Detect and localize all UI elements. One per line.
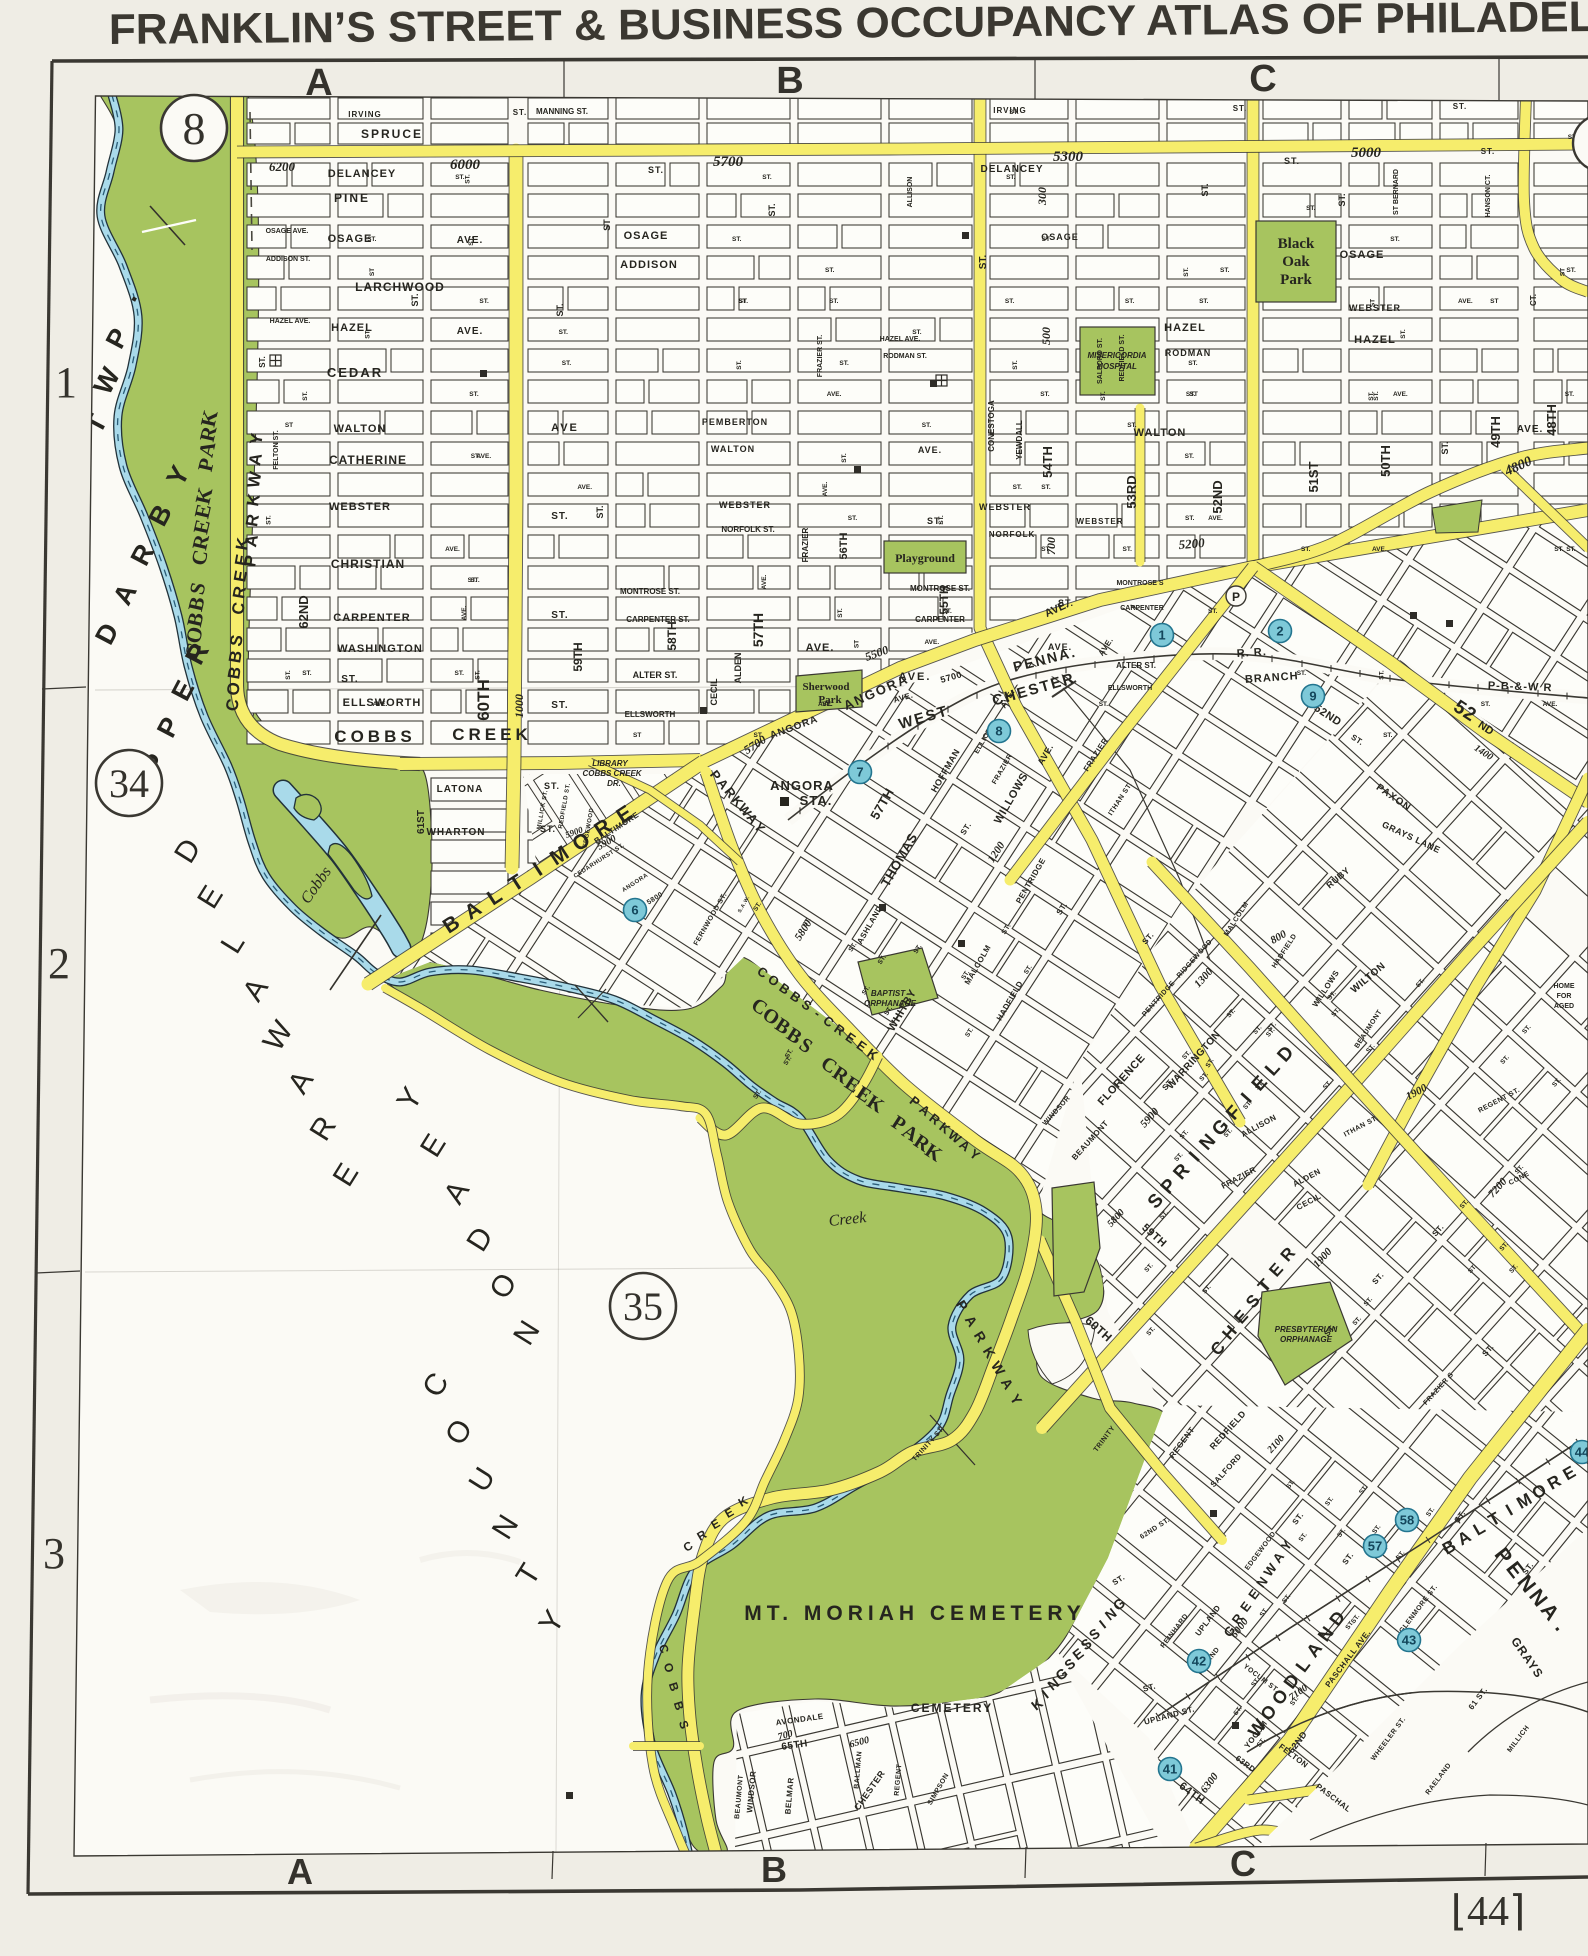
svg-text:ST.: ST. — [1005, 298, 1015, 305]
svg-text:ST.: ST. — [822, 701, 832, 708]
svg-text:ALTER ST.: ALTER ST. — [1116, 661, 1156, 670]
svg-text:ST.: ST. — [1554, 546, 1564, 553]
svg-text:CHRISTIAN: CHRISTIAN — [331, 557, 405, 571]
svg-text:SPRUCE: SPRUCE — [361, 127, 423, 141]
svg-text:ST.: ST. — [1383, 732, 1393, 739]
svg-text:AVE.: AVE. — [457, 326, 484, 337]
svg-text:ST.: ST. — [1390, 236, 1400, 243]
svg-text:ELLSWORTH: ELLSWORTH — [1108, 685, 1152, 692]
svg-text:ST.: ST. — [648, 165, 664, 175]
svg-text:ST.: ST. — [753, 732, 763, 739]
svg-text:ST.: ST. — [341, 674, 358, 685]
svg-text:ELLSWORTH: ELLSWORTH — [625, 710, 676, 719]
svg-text:ST.: ST. — [839, 360, 849, 367]
svg-text:FRAZIER ST.: FRAZIER ST. — [817, 335, 824, 377]
svg-text:ST.: ST. — [841, 453, 848, 463]
svg-text:AVE.: AVE. — [1517, 424, 1544, 435]
svg-text:ST.: ST. — [1233, 104, 1248, 113]
svg-text:ST.: ST. — [1099, 701, 1109, 708]
svg-text:ST.: ST. — [736, 360, 743, 370]
svg-text:ST.: ST. — [1100, 391, 1107, 401]
svg-text:OSAGE: OSAGE — [328, 233, 373, 245]
svg-text:MONTROSE S: MONTROSE S — [1116, 580, 1163, 587]
svg-text:ORPHANAGE: ORPHANAGE — [1280, 1335, 1333, 1344]
svg-text:ST: ST — [369, 268, 376, 276]
svg-text:51ST: 51ST — [1306, 461, 1321, 492]
svg-text:IRVING: IRVING — [348, 110, 381, 119]
svg-text:C: C — [1249, 58, 1276, 100]
svg-text:ST.: ST. — [475, 670, 482, 680]
svg-text:ST.: ST. — [562, 360, 572, 367]
svg-text:ST.: ST. — [1297, 670, 1307, 677]
svg-text:43: 43 — [1402, 1633, 1416, 1648]
svg-text:HOME: HOME — [1554, 983, 1575, 990]
svg-text:AVE.: AVE. — [761, 574, 768, 589]
svg-text:ST.: ST. — [912, 329, 922, 336]
svg-text:ST: ST — [738, 298, 746, 305]
svg-text:ST.: ST. — [922, 422, 932, 429]
svg-text:AVE.: AVE. — [373, 701, 388, 708]
svg-text:NORFOLK ST.: NORFOLK ST. — [721, 525, 774, 534]
svg-text:ST.: ST. — [1337, 193, 1347, 206]
svg-text:ST.: ST. — [1453, 102, 1468, 111]
svg-text:AVE.: AVE. — [1393, 391, 1408, 398]
svg-text:9: 9 — [1309, 689, 1316, 704]
svg-text:OSAGE AVE.: OSAGE AVE. — [266, 228, 309, 235]
svg-text:WEBSTER: WEBSTER — [329, 501, 391, 513]
svg-text:ST.: ST. — [302, 391, 309, 401]
svg-text:C: C — [1230, 1843, 1256, 1884]
svg-text:ST.: ST. — [1040, 391, 1050, 398]
svg-text:ST.: ST. — [513, 108, 528, 117]
svg-text:ST.: ST. — [1379, 670, 1386, 680]
svg-text:7: 7 — [856, 765, 863, 780]
svg-text:ST.: ST. — [1368, 391, 1375, 401]
svg-text:44: 44 — [1575, 1445, 1588, 1460]
svg-text:ALLISON: ALLISON — [907, 177, 914, 208]
svg-text:53RD: 53RD — [1124, 475, 1139, 508]
svg-text:ANGORA: ANGORA — [770, 778, 834, 793]
svg-text:ST.: ST. — [1566, 546, 1576, 553]
svg-text:500: 500 — [1039, 327, 1053, 345]
svg-text:60TH: 60TH — [474, 679, 493, 721]
svg-text:WALTON: WALTON — [334, 423, 387, 435]
svg-text:NORFOLK: NORFOLK — [989, 530, 1036, 539]
svg-text:B: B — [761, 1849, 787, 1890]
svg-text:HANSON CT.: HANSON CT. — [1485, 175, 1492, 218]
svg-text:CONESTOGA: CONESTOGA — [987, 400, 996, 452]
svg-text:57: 57 — [1368, 1539, 1382, 1554]
svg-text:AVE.: AVE. — [445, 546, 460, 553]
svg-text:WALTON: WALTON — [711, 444, 755, 454]
svg-text:ST.: ST. — [302, 670, 312, 677]
svg-text:ST.: ST. — [1125, 298, 1135, 305]
svg-text:P-B-&-W R: P-B-&-W R — [1488, 680, 1553, 694]
svg-text:58TH: 58TH — [665, 621, 679, 650]
svg-text:CREEK: CREEK — [452, 725, 532, 744]
svg-text:COBBS CREEK: COBBS CREEK — [582, 769, 642, 778]
svg-text:49TH: 49TH — [1488, 416, 1503, 448]
svg-text:ST.: ST. — [1566, 267, 1576, 274]
svg-text:ALTER ST.: ALTER ST. — [633, 670, 678, 680]
svg-text:ADDISON ST.: ADDISON ST. — [266, 256, 310, 263]
svg-text:1000: 1000 — [512, 694, 526, 718]
svg-text:54TH: 54TH — [1040, 446, 1055, 478]
svg-text:WEBSTER: WEBSTER — [719, 500, 771, 510]
svg-text:AGED: AGED — [1554, 1003, 1574, 1010]
svg-text:Sherwood: Sherwood — [802, 681, 849, 693]
svg-text:DELANCEY: DELANCEY — [328, 168, 397, 180]
svg-text:61ST: 61ST — [416, 810, 427, 834]
svg-text:LATONA: LATONA — [437, 784, 484, 795]
svg-text:AVE.: AVE. — [822, 481, 829, 496]
svg-text:ST.: ST. — [1012, 360, 1019, 370]
svg-text:ST: ST — [1190, 391, 1198, 398]
svg-text:ST.: ST. — [365, 329, 372, 339]
svg-text:MONTROSE ST.: MONTROSE ST. — [620, 587, 680, 596]
svg-text:ST.: ST. — [1220, 267, 1230, 274]
svg-text:Oak: Oak — [1282, 254, 1310, 270]
svg-text:ST.: ST. — [468, 236, 475, 246]
svg-text:ST.: ST. — [1481, 701, 1491, 708]
svg-text:CECIL: CECIL — [709, 678, 719, 706]
svg-text:ST.: ST. — [595, 505, 605, 518]
svg-text:ST.: ST. — [1041, 546, 1051, 553]
svg-text:DR.: DR. — [607, 779, 621, 788]
svg-text:ST: ST — [285, 422, 293, 429]
svg-text:AVE.: AVE. — [461, 605, 468, 620]
svg-text:ST.: ST. — [465, 174, 472, 184]
svg-text:ST.: ST. — [285, 670, 292, 680]
svg-text:P: P — [1232, 590, 1240, 604]
svg-text:3: 3 — [43, 1529, 65, 1578]
svg-text:SALFORD ST.: SALFORD ST. — [1097, 338, 1104, 384]
svg-text:ALDEN: ALDEN — [733, 653, 743, 684]
svg-text:CATHERINE: CATHERINE — [329, 453, 407, 467]
svg-text:BAPTIST: BAPTIST — [871, 989, 906, 998]
svg-text:ST.: ST. — [1301, 546, 1311, 553]
svg-text:57TH: 57TH — [750, 613, 766, 647]
svg-text:ST.: ST. — [942, 608, 952, 615]
svg-text:ST.: ST. — [762, 174, 772, 181]
svg-text:FRAZIER: FRAZIER — [801, 527, 810, 562]
svg-text:ST.: ST. — [732, 236, 742, 243]
svg-text:300: 300 — [1035, 187, 1049, 206]
svg-text:52ND: 52ND — [1210, 480, 1225, 513]
svg-text:ST.: ST. — [837, 608, 844, 618]
svg-text:PEMBERTON: PEMBERTON — [702, 417, 768, 427]
svg-text:ST.: ST. — [1565, 391, 1575, 398]
svg-text:AVE.: AVE. — [1543, 701, 1558, 708]
svg-text:CT.: CT. — [1529, 294, 1538, 306]
svg-text:AVE.: AVE. — [1208, 515, 1223, 522]
svg-text:50TH: 50TH — [1378, 445, 1393, 477]
svg-text:1: 1 — [1158, 628, 1165, 643]
svg-text:MISERICORDIA: MISERICORDIA — [1087, 351, 1146, 360]
svg-text:41: 41 — [1163, 1762, 1177, 1777]
svg-text:ST.: ST. — [938, 515, 945, 525]
svg-text:ST.: ST. — [470, 577, 480, 584]
svg-text:RODMAN: RODMAN — [1165, 348, 1212, 358]
svg-text:FOR: FOR — [1557, 993, 1572, 1000]
svg-text:48TH: 48TH — [1544, 404, 1559, 436]
svg-text:AVE.: AVE. — [806, 642, 835, 654]
svg-text:ST: ST — [633, 732, 641, 739]
svg-text:CARPENTER ST.: CARPENTER ST. — [626, 615, 690, 624]
svg-text:R. R.: R. R. — [1236, 646, 1267, 660]
svg-text:YEWDALL: YEWDALL — [1015, 420, 1024, 460]
svg-text:A: A — [305, 62, 332, 104]
svg-text:ST.: ST. — [479, 298, 489, 305]
svg-text:ST.: ST. — [1188, 360, 1198, 367]
svg-text:HAZEL: HAZEL — [1164, 322, 1206, 334]
svg-text:AVE.: AVE. — [924, 639, 939, 646]
svg-text:5000: 5000 — [1351, 145, 1382, 161]
svg-text:ST.: ST. — [1013, 484, 1023, 491]
svg-text:ST.: ST. — [1009, 109, 1019, 116]
svg-text:AVE.: AVE. — [1458, 298, 1473, 305]
svg-text:34: 34 — [109, 761, 149, 806]
svg-text:ST.: ST. — [258, 356, 267, 368]
svg-text:HAZEL AVE.: HAZEL AVE. — [880, 336, 921, 343]
svg-text:LARCHWOOD: LARCHWOOD — [355, 280, 445, 294]
svg-text:ST.: ST. — [1199, 298, 1209, 305]
svg-text:LIBRARY: LIBRARY — [592, 759, 628, 768]
svg-text:ST.: ST. — [544, 781, 560, 791]
svg-text:ST.: ST. — [1200, 183, 1210, 196]
svg-text:62ND: 62ND — [296, 595, 311, 628]
svg-text:ST.: ST. — [1481, 147, 1496, 156]
svg-text:WEBSTER: WEBSTER — [979, 502, 1031, 512]
svg-text:ST.: ST. — [1400, 329, 1407, 339]
svg-text:OSAGE: OSAGE — [624, 230, 669, 242]
svg-text:ST.: ST. — [1006, 174, 1016, 181]
svg-text:AVE.: AVE. — [577, 484, 592, 491]
svg-text:ST BERNARD: ST BERNARD — [1393, 169, 1400, 215]
svg-text:ST.: ST. — [848, 515, 858, 522]
svg-text:5300: 5300 — [1053, 149, 1084, 165]
svg-text:ST.: ST. — [455, 174, 465, 181]
svg-text:ST.: ST. — [551, 700, 568, 711]
svg-text:HOSPITAL: HOSPITAL — [1097, 362, 1137, 371]
svg-text:ST.: ST. — [454, 670, 464, 677]
svg-text:ST: ST — [853, 640, 860, 648]
svg-text:ST.: ST. — [1041, 484, 1051, 491]
svg-text:B: B — [776, 60, 803, 102]
svg-text:WALTON: WALTON — [1134, 427, 1187, 439]
svg-text:42: 42 — [1192, 1654, 1206, 1669]
svg-text:Park: Park — [1280, 272, 1312, 288]
svg-text:ST.: ST. — [1185, 515, 1195, 522]
svg-text:59TH: 59TH — [571, 642, 585, 671]
svg-text:CARPENTER: CARPENTER — [333, 612, 410, 624]
svg-text:ST.: ST. — [410, 293, 420, 306]
svg-text:ST.: ST. — [469, 391, 479, 398]
svg-text:AVE.: AVE. — [918, 445, 942, 455]
svg-text:ST.: ST. — [1183, 267, 1190, 277]
svg-text:6000: 6000 — [450, 157, 481, 173]
svg-text:HAZEL: HAZEL — [1354, 334, 1396, 346]
svg-text:ST.: ST. — [1185, 453, 1195, 460]
svg-text:A: A — [287, 1851, 313, 1892]
svg-text:5200: 5200 — [1178, 535, 1206, 552]
svg-text:⌊44⌉: ⌊44⌉ — [1451, 1889, 1526, 1935]
svg-text:ST.: ST. — [825, 267, 835, 274]
svg-text:ST: ST — [1560, 268, 1567, 276]
svg-text:AVE.: AVE. — [1372, 546, 1387, 553]
svg-text:ST.: ST. — [367, 236, 377, 243]
svg-text:OSAGE: OSAGE — [1340, 249, 1385, 261]
svg-text:2: 2 — [48, 939, 70, 988]
svg-text:2: 2 — [1276, 624, 1283, 639]
svg-text:FELTON ST.: FELTON ST. — [273, 430, 280, 469]
svg-text:CEMETERY: CEMETERY — [911, 1701, 993, 1715]
svg-text:MT. MORIAH CEMETERY: MT. MORIAH CEMETERY — [744, 1602, 1086, 1625]
svg-text:ST: ST — [602, 219, 612, 231]
svg-text:ST.: ST. — [1122, 546, 1132, 553]
svg-text:WEBSTER: WEBSTER — [1077, 517, 1124, 526]
svg-text:ST.: ST. — [1284, 156, 1300, 166]
svg-text:ST.: ST. — [265, 515, 272, 525]
svg-text:HAZEL AVE.: HAZEL AVE. — [270, 318, 311, 325]
svg-text:ST: ST — [1370, 299, 1377, 307]
svg-text:CEDAR: CEDAR — [327, 365, 383, 380]
svg-text:CARPENTER: CARPENTER — [915, 615, 965, 624]
svg-text:ST.: ST. — [551, 610, 568, 621]
svg-text:RODMAN ST.: RODMAN ST. — [883, 353, 927, 360]
svg-text:5700: 5700 — [713, 154, 744, 170]
svg-text:ST.: ST. — [551, 511, 568, 522]
svg-text:ADDISON: ADDISON — [620, 259, 678, 271]
svg-text:8: 8 — [995, 724, 1002, 739]
svg-text:ST.: ST. — [1127, 422, 1137, 429]
svg-text:CARPENTER: CARPENTER — [1120, 605, 1164, 612]
svg-text:ST: ST — [1490, 298, 1498, 305]
svg-text:ST.: ST. — [767, 203, 777, 216]
svg-text:Black: Black — [1278, 236, 1315, 252]
svg-text:AVE: AVE — [551, 422, 579, 434]
svg-text:1: 1 — [55, 358, 77, 407]
svg-text:WHARTON: WHARTON — [426, 827, 485, 838]
svg-text:ST.: ST. — [559, 329, 569, 336]
svg-text:35: 35 — [623, 1284, 663, 1329]
svg-text:58: 58 — [1400, 1513, 1414, 1528]
svg-text:ST.: ST. — [1440, 441, 1450, 454]
svg-text:ST.: ST. — [1306, 205, 1316, 212]
svg-text:Playground: Playground — [895, 551, 955, 565]
svg-text:PINE: PINE — [334, 191, 370, 205]
svg-text:ST.: ST. — [555, 303, 565, 316]
svg-text:STA.: STA. — [800, 793, 833, 808]
svg-text:ST.: ST. — [829, 298, 839, 305]
svg-text:AVE.: AVE. — [476, 453, 491, 460]
svg-text:ST.: ST. — [1208, 608, 1218, 615]
svg-text:ST.: ST. — [978, 255, 989, 270]
svg-text:MANNING ST.: MANNING ST. — [536, 107, 588, 116]
svg-text:ST: ST — [1042, 236, 1050, 243]
svg-text:AVE.: AVE. — [827, 391, 842, 398]
svg-text:COBBS: COBBS — [334, 727, 415, 746]
svg-text:8: 8 — [183, 103, 206, 154]
svg-text:6: 6 — [631, 903, 638, 918]
svg-text:WASHINGTON: WASHINGTON — [337, 643, 423, 655]
svg-text:56TH: 56TH — [838, 532, 850, 559]
svg-text:6200: 6200 — [269, 159, 296, 174]
